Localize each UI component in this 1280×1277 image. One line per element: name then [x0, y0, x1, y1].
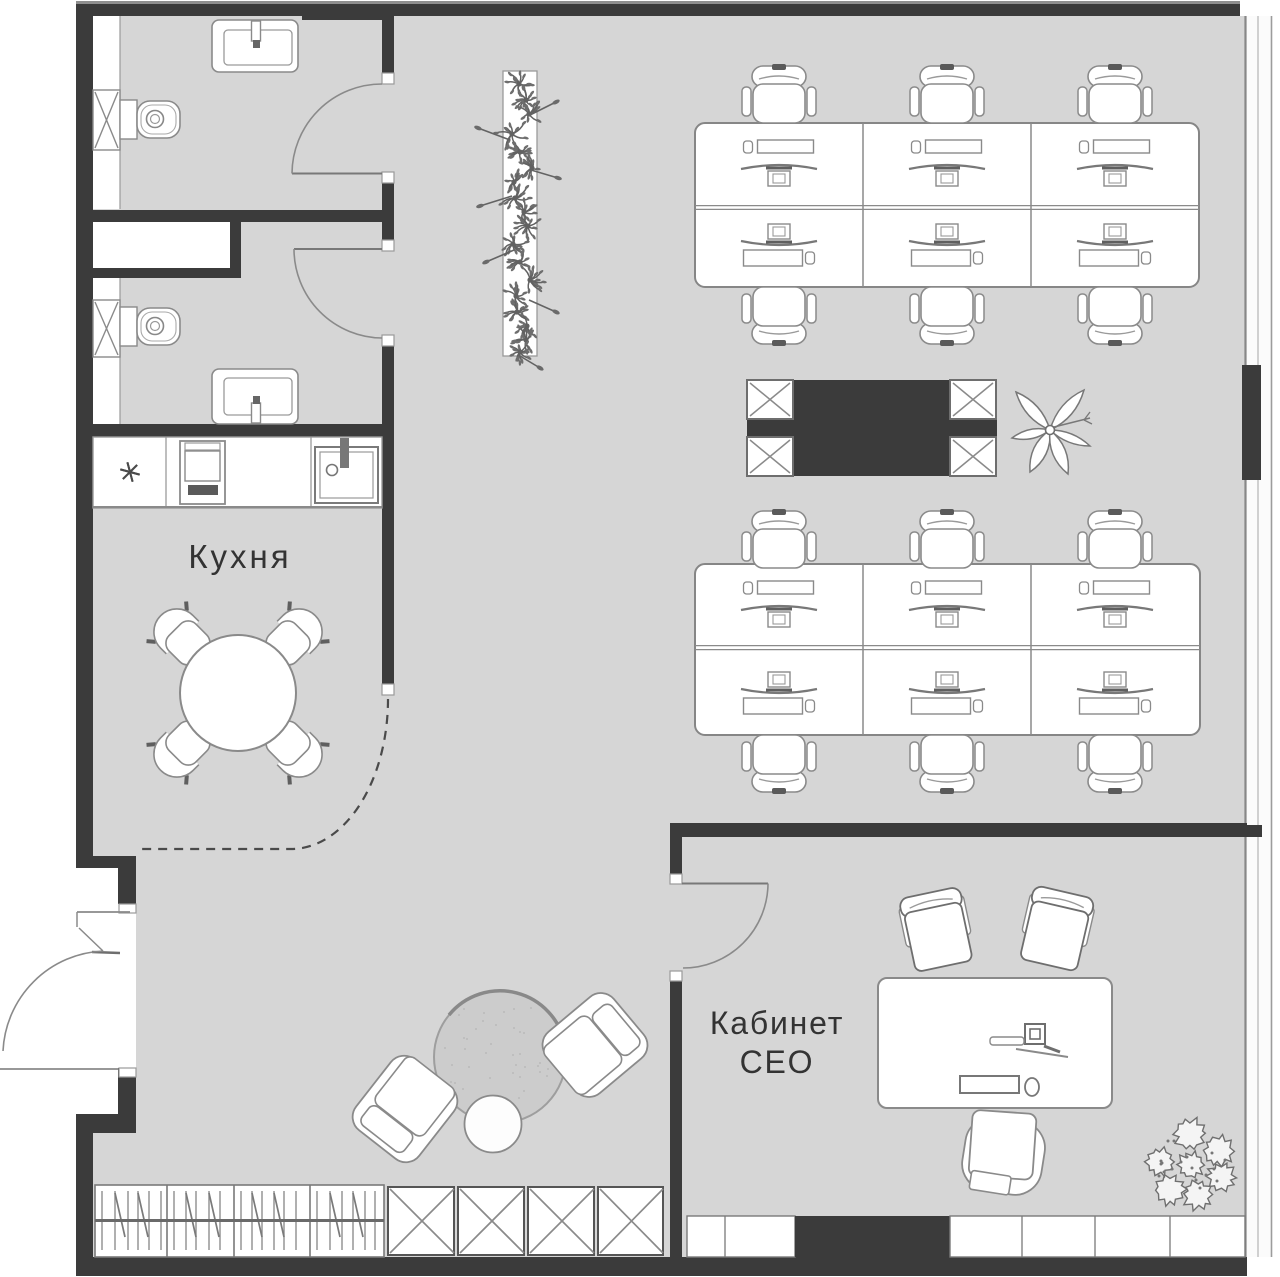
svg-text:СЕО: СЕО [740, 1044, 815, 1080]
svg-text:Кабинет: Кабинет [710, 1005, 844, 1041]
svg-text:Кухня: Кухня [188, 538, 291, 575]
